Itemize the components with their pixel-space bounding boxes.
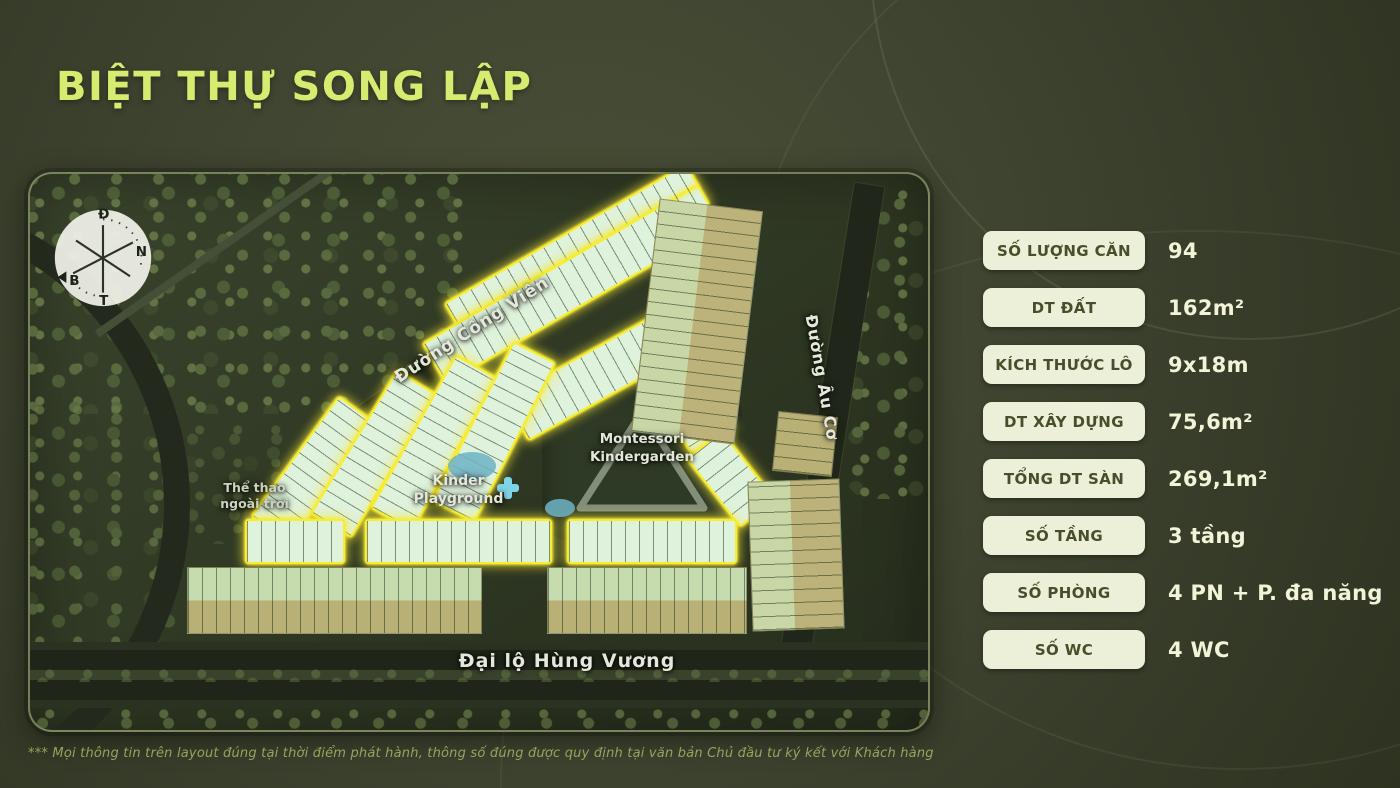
spec-row: KÍCH THƯỚC LÔ 9x18m	[983, 345, 1383, 384]
spec-value: 162m²	[1168, 296, 1244, 320]
spec-row: SỐ PHÒNG 4 PN + P. đa năng	[983, 573, 1383, 612]
spec-value: 3 tầng	[1168, 524, 1246, 548]
compass-left: B	[69, 273, 79, 289]
compass-right: N	[136, 244, 147, 260]
spec-value: 9x18m	[1168, 353, 1249, 377]
spec-value: 4 WC	[1168, 638, 1230, 662]
spec-row: DT XÂY DỰNG 75,6m²	[983, 402, 1383, 441]
spec-label: TỔNG DT SÀN	[983, 459, 1145, 498]
disclaimer: *** Mọi thông tin trên layout đúng tại t…	[28, 746, 934, 761]
compass-bottom: T	[99, 293, 109, 308]
lot-row-highlighted	[365, 519, 552, 564]
place-label-kinder-playground: Kinder Playground	[396, 472, 521, 508]
tree-texture	[30, 708, 930, 732]
slide: { "title": "BIỆT THỰ SONG LẬP", "specs":…	[0, 0, 1400, 788]
spec-row: SỐ LƯỢNG CĂN 94	[983, 231, 1383, 270]
spec-row: DT ĐẤT 162m²	[983, 288, 1383, 327]
lot-row-highlighted	[245, 519, 345, 564]
place-label-outdoor-sports: Thể thao ngoài trời	[202, 480, 307, 513]
lot-block	[747, 478, 844, 631]
spec-label: KÍCH THƯỚC LÔ	[983, 345, 1145, 384]
spec-label: SỐ PHÒNG	[983, 573, 1145, 612]
spec-row: SỐ TẦNG 3 tầng	[983, 516, 1383, 555]
spec-value: 94	[1168, 239, 1198, 263]
site-map: Đ N B T Đường Công Viên Đường Âu Cơ Đại …	[28, 172, 930, 732]
pond	[545, 499, 575, 517]
spec-row: SỐ WC 4 WC	[983, 630, 1383, 669]
specs-panel: SỐ LƯỢNG CĂN 94 DT ĐẤT 162m² KÍCH THƯỚC …	[983, 231, 1383, 687]
lot-block	[547, 567, 747, 634]
spec-value: 75,6m²	[1168, 410, 1253, 434]
lot-row-highlighted	[567, 519, 737, 564]
spec-value: 269,1m²	[1168, 467, 1268, 491]
spec-row: TỔNG DT SÀN 269,1m²	[983, 459, 1383, 498]
page-title: BIỆT THỰ SONG LẬP	[56, 64, 532, 110]
spec-label: SỐ LƯỢNG CĂN	[983, 231, 1145, 270]
lot-block	[187, 567, 482, 634]
spec-label: SỐ WC	[983, 630, 1145, 669]
compass-icon: Đ N B T	[50, 202, 156, 308]
spec-value: 4 PN + P. đa năng	[1168, 581, 1383, 605]
spec-label: SỐ TẦNG	[983, 516, 1145, 555]
spec-label: DT ĐẤT	[983, 288, 1145, 327]
spec-label: DT XÂY DỰNG	[983, 402, 1145, 441]
street-label-hung-vuong: Đại lộ Hùng Vương	[437, 650, 697, 672]
compass-top: Đ	[98, 206, 109, 222]
place-label-montessori: Montessori Kindergarden	[567, 430, 717, 466]
